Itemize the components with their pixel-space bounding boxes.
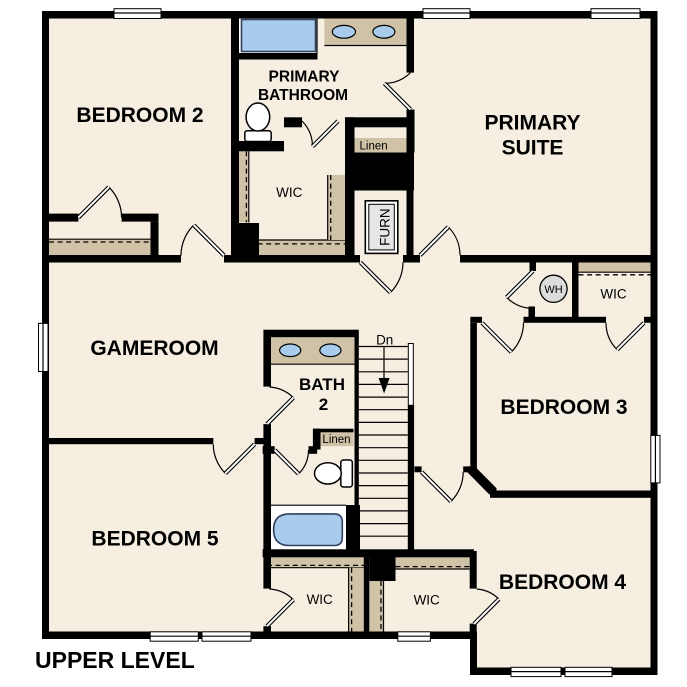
svg-text:SUITE: SUITE	[502, 136, 564, 159]
svg-text:Linen: Linen	[360, 141, 388, 153]
svg-text:WH: WH	[544, 284, 562, 296]
svg-text:2: 2	[319, 395, 328, 414]
svg-text:BATHROOM: BATHROOM	[258, 87, 348, 104]
svg-text:WIC: WIC	[276, 185, 302, 200]
svg-text:Dn: Dn	[376, 332, 393, 347]
svg-text:Linen: Linen	[322, 434, 350, 446]
svg-text:UPPER LEVEL: UPPER LEVEL	[35, 647, 195, 673]
svg-text:GAMEROOM: GAMEROOM	[90, 337, 218, 360]
svg-text:PRIMARY: PRIMARY	[269, 69, 341, 86]
svg-text:BEDROOM 2: BEDROOM 2	[76, 104, 203, 127]
svg-text:BATH: BATH	[299, 375, 345, 394]
svg-text:WIC: WIC	[414, 593, 440, 608]
svg-text:BEDROOM 3: BEDROOM 3	[500, 396, 627, 419]
svg-text:FURN: FURN	[378, 208, 393, 246]
svg-text:BEDROOM 5: BEDROOM 5	[91, 527, 219, 550]
svg-text:BEDROOM 4: BEDROOM 4	[499, 571, 627, 594]
svg-text:WIC: WIC	[307, 592, 333, 607]
svg-text:WIC: WIC	[600, 287, 626, 302]
svg-text:PRIMARY: PRIMARY	[484, 111, 580, 134]
